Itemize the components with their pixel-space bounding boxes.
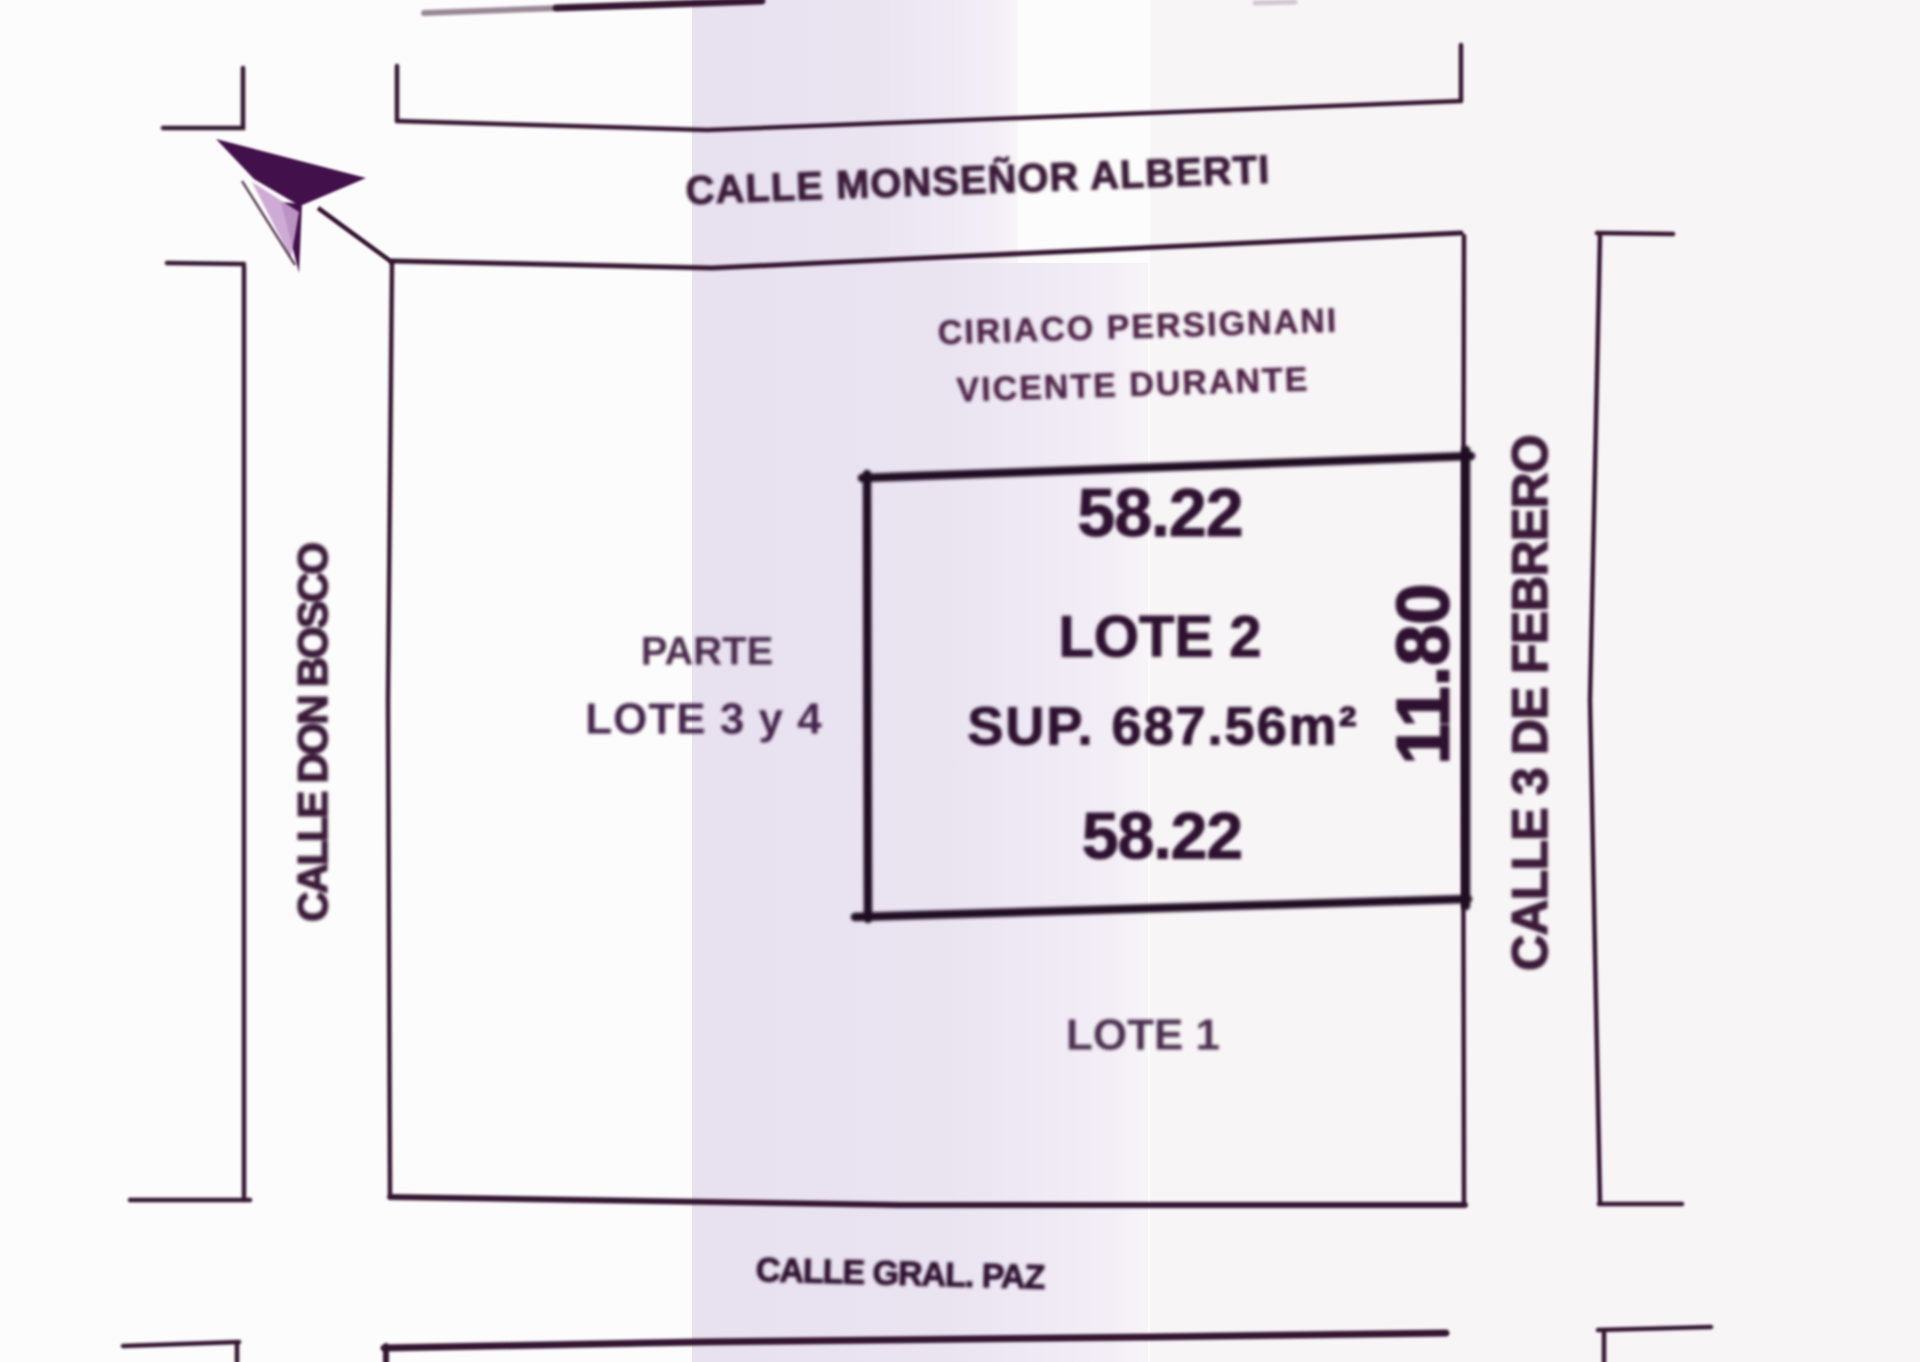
svg-text:CALLE DON BOSCO: CALLE DON BOSCO	[289, 544, 336, 922]
svg-text:58.22: 58.22	[1077, 475, 1242, 551]
svg-text:LOTE 1: LOTE 1	[1066, 1011, 1220, 1060]
svg-text:58.22: 58.22	[1082, 798, 1242, 872]
svg-text:LOTE 3 y 4: LOTE 3 y 4	[585, 695, 822, 744]
svg-text:PARTE: PARTE	[641, 630, 774, 674]
svg-text:11.80: 11.80	[1382, 583, 1465, 764]
svg-text:LOTE 2: LOTE 2	[1058, 604, 1261, 669]
svg-text:CALLE 3 DE FEBRERO: CALLE 3 DE FEBRERO	[1502, 435, 1558, 971]
svg-text:CALLE GRAL. PAZ: CALLE GRAL. PAZ	[755, 1251, 1045, 1297]
svg-text:SUP. 687.56m²: SUP. 687.56m²	[967, 696, 1358, 756]
